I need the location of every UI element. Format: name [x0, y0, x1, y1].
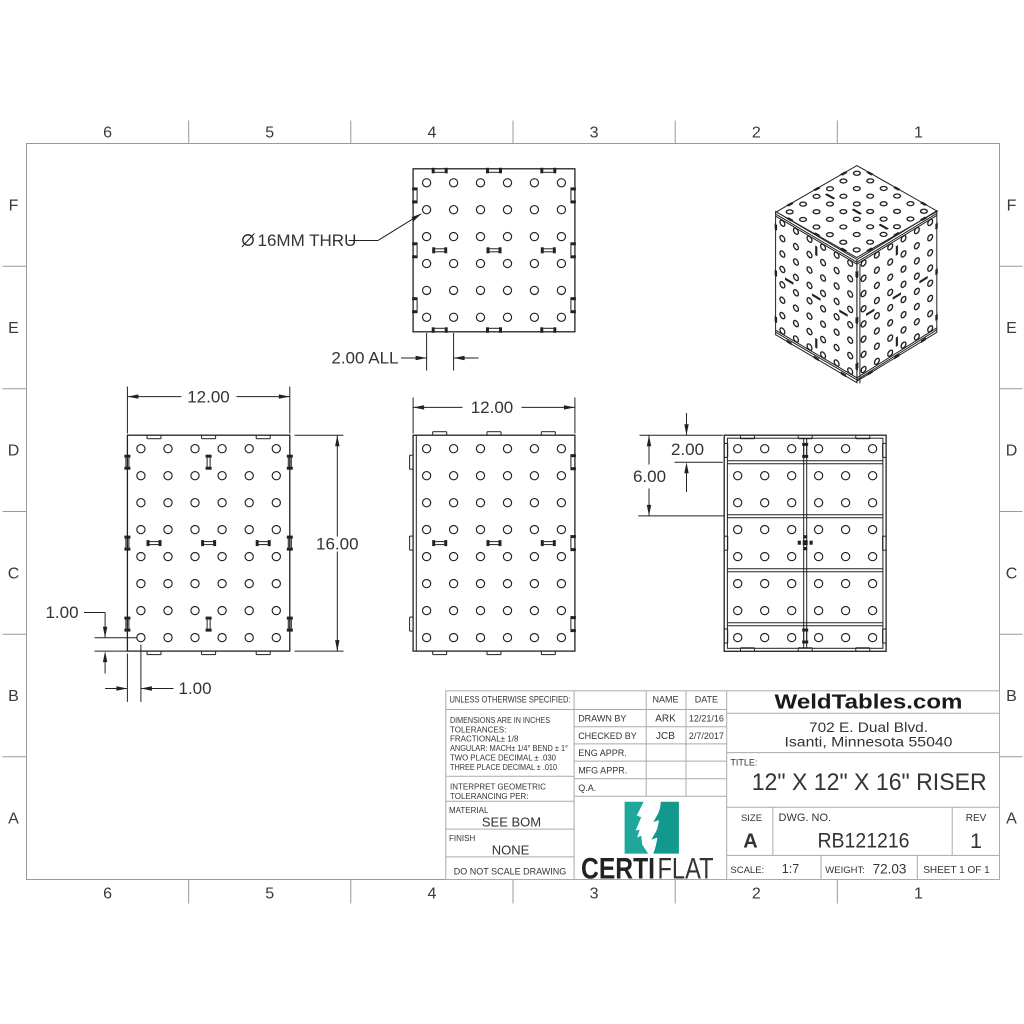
- svg-text:4: 4: [427, 886, 436, 903]
- svg-text:FINISH: FINISH: [449, 834, 475, 843]
- svg-text:72.03: 72.03: [873, 862, 907, 877]
- svg-text:12.00: 12.00: [187, 387, 230, 406]
- svg-text:A: A: [8, 811, 19, 828]
- svg-text:2: 2: [752, 886, 761, 903]
- svg-text:3: 3: [590, 886, 599, 903]
- svg-text:D: D: [1006, 443, 1018, 460]
- svg-text:F: F: [9, 197, 19, 214]
- svg-text:6: 6: [103, 125, 112, 142]
- svg-text:Isanti, Minnesota 55040: Isanti, Minnesota 55040: [785, 735, 953, 750]
- svg-text:16.00: 16.00: [316, 535, 359, 554]
- svg-text:INTERPRET GEOMETRIC: INTERPRET GEOMETRIC: [450, 783, 546, 792]
- svg-text:SIZE: SIZE: [741, 813, 762, 824]
- svg-text:F: F: [1007, 197, 1017, 214]
- svg-text:4: 4: [427, 125, 436, 142]
- svg-text:FLAT: FLAT: [658, 852, 714, 885]
- svg-text:C: C: [1006, 565, 1018, 582]
- svg-text:FRACTIONAL± 1/8: FRACTIONAL± 1/8: [450, 735, 519, 744]
- svg-text:2: 2: [752, 125, 761, 142]
- svg-text:NAME: NAME: [652, 694, 678, 704]
- svg-text:1:7: 1:7: [782, 862, 799, 876]
- svg-text:702 E. Dual Blvd.: 702 E. Dual Blvd.: [809, 720, 928, 735]
- svg-text:1.00: 1.00: [179, 679, 212, 698]
- svg-text:JCB: JCB: [656, 731, 675, 742]
- svg-text:A: A: [743, 831, 757, 853]
- svg-text:5: 5: [265, 125, 274, 142]
- svg-text:TITLE:: TITLE:: [730, 758, 757, 768]
- svg-text:3: 3: [590, 125, 599, 142]
- svg-text:D: D: [8, 443, 20, 460]
- svg-text:B: B: [1006, 688, 1017, 705]
- svg-text:DO NOT SCALE DRAWING: DO NOT SCALE DRAWING: [454, 866, 567, 876]
- svg-text:TOLERANCING PER:: TOLERANCING PER:: [450, 792, 529, 801]
- svg-text:5: 5: [265, 886, 274, 903]
- svg-text:C: C: [8, 565, 20, 582]
- svg-text:TWO PLACE DECIMAL ± .030: TWO PLACE DECIMAL ± .030: [450, 754, 557, 763]
- svg-text:DRAWN BY: DRAWN BY: [578, 714, 626, 724]
- svg-text:RB121216: RB121216: [818, 829, 910, 853]
- svg-text:1: 1: [914, 125, 923, 142]
- svg-text:ANGULAR: MACH± 1/4° BEND ± 1°: ANGULAR: MACH± 1/4° BEND ± 1°: [450, 744, 568, 753]
- svg-text:1: 1: [914, 886, 923, 903]
- svg-text:WeldTables.com: WeldTables.com: [775, 691, 963, 714]
- svg-text:E: E: [1006, 320, 1017, 337]
- svg-text:6.00: 6.00: [633, 467, 666, 486]
- svg-text:ENG APPR.: ENG APPR.: [578, 748, 627, 758]
- svg-text:WEIGHT:: WEIGHT:: [825, 865, 865, 876]
- svg-text:2.00: 2.00: [671, 440, 704, 459]
- svg-text:16MM THRU: 16MM THRU: [258, 231, 357, 250]
- svg-text:B: B: [8, 688, 19, 705]
- svg-text:TOLERANCES:: TOLERANCES:: [450, 725, 506, 734]
- svg-text:A: A: [1006, 811, 1017, 828]
- svg-text:REV: REV: [966, 813, 987, 824]
- svg-text:SCALE:: SCALE:: [730, 865, 764, 876]
- svg-text:DATE: DATE: [695, 694, 718, 704]
- svg-text:1: 1: [970, 829, 982, 853]
- svg-text:SHEET 1 OF 1: SHEET 1 OF 1: [923, 865, 990, 876]
- svg-text:12" X 12" X 16" RISER: 12" X 12" X 16" RISER: [752, 769, 987, 796]
- svg-text:CERTI: CERTI: [581, 852, 655, 885]
- svg-text:NONE: NONE: [492, 843, 530, 858]
- svg-text:ARK: ARK: [655, 714, 676, 725]
- svg-text:Q.A.: Q.A.: [578, 783, 596, 793]
- svg-text:12/21/16: 12/21/16: [689, 714, 724, 724]
- svg-text:DIMENSIONS ARE IN INCHES: DIMENSIONS ARE IN INCHES: [450, 716, 550, 725]
- svg-text:SEE BOM: SEE BOM: [482, 815, 541, 830]
- svg-text:2.00 ALL: 2.00 ALL: [331, 349, 398, 368]
- svg-text:2/7/2017: 2/7/2017: [689, 731, 724, 741]
- svg-text:DWG. NO.: DWG. NO.: [779, 812, 832, 824]
- svg-text:CHECKED BY: CHECKED BY: [578, 731, 637, 741]
- svg-text:12.00: 12.00: [471, 398, 514, 417]
- svg-text:1.00: 1.00: [45, 603, 78, 622]
- svg-text:6: 6: [103, 886, 112, 903]
- svg-text:E: E: [8, 320, 19, 337]
- svg-text:MFG APPR.: MFG APPR.: [578, 765, 627, 775]
- svg-text:UNLESS OTHERWISE SPECIFIED:: UNLESS OTHERWISE SPECIFIED:: [450, 694, 571, 704]
- svg-text:THREE PLACE DECIMAL ± .010: THREE PLACE DECIMAL ± .010: [450, 763, 557, 772]
